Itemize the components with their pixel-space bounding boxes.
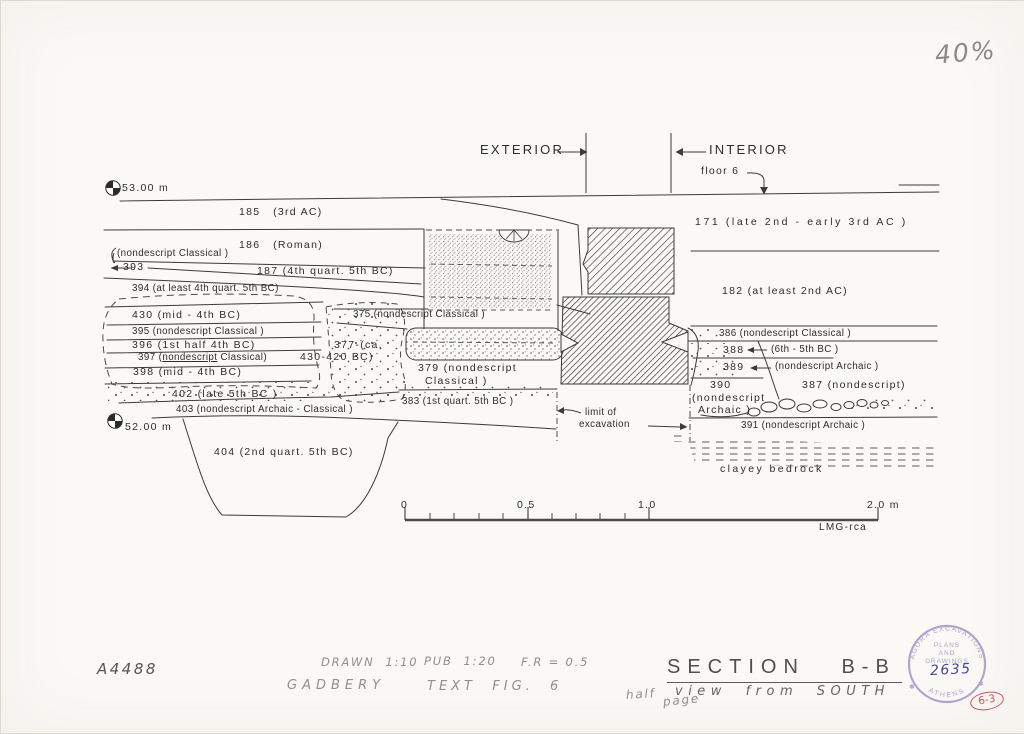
arrowhead [557,407,564,414]
drawn-scale-note: DRAWN 1:10 [321,656,418,669]
label-stratum-377-line2: 430-420 BC) [300,351,374,363]
stamp-star-icon: ✱ [978,680,984,688]
label-stratum-187: 187 (4th quart. 5th BC) [257,265,394,277]
label-stratum-390-line3: Archaic ) [698,404,751,416]
label-stratum-430: 430 (mid - 4th BC) [132,309,241,321]
label-stratum-397: 397 (nondescript Classical) [138,352,267,363]
stratum-boundary-line [104,229,424,230]
reduction-factor-note: F.R = 0.5 [521,656,589,669]
scale-tick-10: 1.0 [638,499,657,511]
stone [831,404,841,411]
label-stratum-386: 386 (nondescript Classical ) [719,328,851,339]
scale-tick-05: 0.5 [517,499,536,511]
pit-404-outline [183,419,398,517]
bedding-band [406,328,563,360]
upper-wall-block [583,228,674,294]
label-stratum-389: 389 [723,361,744,373]
benchmark-quadrant [106,181,113,188]
label-stratum-186: 186 (Roman) [239,239,323,251]
label-stratum-389-note: (nondescript Archaic ) [775,361,879,372]
label-stratum-393: 393 [123,261,144,273]
floor6-arrow-line [747,173,764,187]
arrowhead [750,365,757,371]
stone [844,402,854,409]
label-stratum-393-note: (nondescript Classical ) [117,248,228,259]
stamp-serial-number: 2635 [930,661,972,679]
scale-tick-20: 2.0 m [867,499,900,511]
arrowhead [680,423,688,430]
dots-386-wedge [688,328,718,340]
stamp-line-and: AND [939,650,956,657]
label-stratum-379-line1: 379 (nondescript [418,362,517,374]
label-stratum-403: 403 (nondescript Archaic - Classical ) [176,404,353,415]
limit-of-excavation-label-2: excavation [579,419,630,430]
wall-blocks [561,228,688,384]
benchmark-quadrant [108,414,115,421]
exterior-label: EXTERIOR [480,143,564,158]
label-stratum-388: 388 [723,344,744,356]
label-stratum-391: 391 (nondescript Archaic ) [741,420,865,431]
limit-left-arrow-line [564,410,581,413]
ground-datum-line [120,192,939,201]
limit-right-arrow-line [648,426,680,427]
arrowhead [676,148,684,156]
stratum-boundary-line [105,302,323,307]
bedrock-label: clayey bedrock [720,463,824,475]
label-stratum-398: 398 (mid - 4th BC) [133,366,242,378]
pub-scale-note: PUB 1:20 [424,655,497,668]
label-stratum-388-note: (6th - 5th BC ) [771,344,839,355]
stamp-line-plans: PLANS [934,642,960,649]
label-stratum-396: 396 (1st half 4th BC) [132,339,256,351]
figure-reference-note: TEXT FIG. 6 [427,680,562,695]
coarse-bedding-band [406,328,563,360]
label-stratum-404: 404 (2nd quart. 5th BC) [214,446,354,458]
stratum-boundary-line [152,416,556,429]
inventory-number: A4488 [97,661,158,678]
label-stratum-390-line1: 390 [710,379,731,391]
arrowhead [111,265,119,271]
label-stratum-395: 395 (nondescript Classical ) [132,326,264,337]
stamp-star-icon: ✱ [909,683,915,691]
stipple-fill [429,234,551,308]
arrowhead [747,347,754,353]
section-subtitle: view from SOUTH [675,685,890,700]
elevation-top-label: 53.00 m [122,182,169,194]
label-stratum-390-line2: (nondescript [692,392,765,404]
stone [779,399,795,409]
stamp-bottom-text: ATHENS [927,687,967,699]
scale-credit: LMG-rca [819,522,867,534]
interior-label: INTERIOR [709,143,789,158]
benchmark-icon [106,181,120,195]
stone [797,404,811,412]
scale-tick-0: 0 [401,499,408,511]
stratum-397-suffix: Classical) [217,352,267,363]
label-stratum-387: 387 (nondescript) [802,379,906,391]
stone [857,400,867,407]
label-stratum-375: 375 (nondescript Classical ) [353,309,485,320]
limit-of-excavation-label-1: limit of [585,407,617,418]
stone [813,400,827,408]
elevation-bottom-label: 52.00 m [125,421,172,433]
stone [870,402,878,408]
author-note: GADBERY [287,679,385,694]
label-stratum-383: 383 (1st quart. 5th BC ) [402,396,513,407]
stratum-boundary-line [689,417,937,418]
label-stratum-171: 171 (late 2nd - early 3rd AC ) [695,216,908,228]
stamp-bottom-arc-label: ATHENS [927,687,967,699]
stratum-397-prefix: 397 ( [138,352,162,363]
scanned-drawing-sheet: AGORA EXCAVATIONS ATHENS PLANS AND DRAWI… [0,0,1024,734]
label-stratum-182: 182 (at least 2nd AC) [722,285,848,297]
section-title: SECTION B-B [667,656,902,683]
scale-percentage-note: 40% [934,36,998,70]
bedrock-patch [669,432,687,442]
half-page-note-1: half [626,687,657,703]
floor6-label: floor 6 [701,165,739,177]
benchmark-icon [108,414,122,428]
stratum-397-underlined: nondescript [162,352,217,363]
benchmark-quadrant [113,188,120,195]
label-stratum-379-line2: Classical ) [425,375,488,387]
benchmark-quadrant [115,421,122,428]
label-stratum-394: 394 (at least 4th quart. 5th BC) [132,283,279,294]
label-stratum-185: 185 (3rd AC) [239,206,323,218]
stratum-boundary-line [107,322,321,325]
stone [882,401,889,406]
label-stratum-402: 402 (late 5th BC ) [172,388,278,400]
label-stratum-377-line1: 377-(ca. [334,339,383,351]
